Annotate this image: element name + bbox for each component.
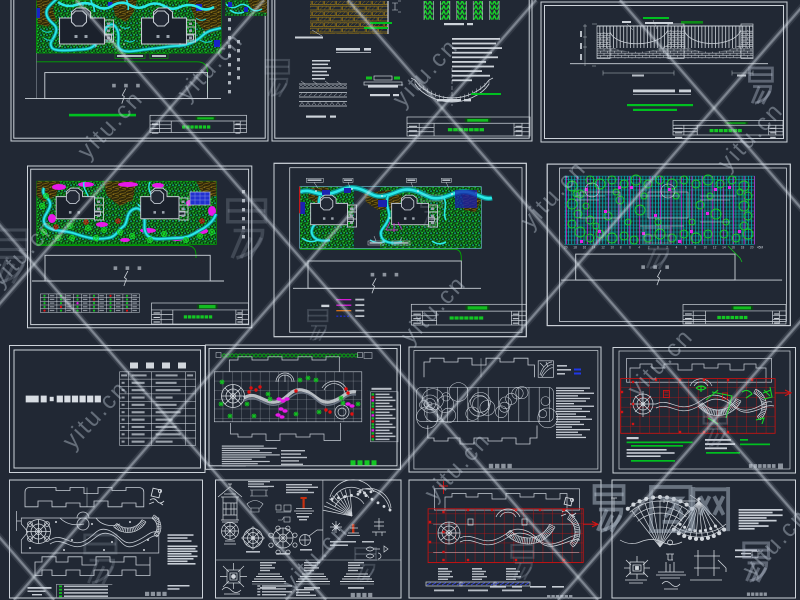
svg-text:16: 16 [583,246,587,250]
svg-text:4: 4 [638,246,640,250]
svg-text:10: 10 [611,246,615,250]
svg-text:18: 18 [573,246,577,250]
svg-text:4: 4 [676,246,678,250]
svg-text:20: 20 [750,246,754,250]
svg-text:14: 14 [722,246,726,250]
svg-text:6: 6 [629,246,631,250]
svg-text:16: 16 [731,246,735,250]
svg-text:45M: 45M [757,246,764,250]
svg-text:18: 18 [741,246,745,250]
svg-text:10: 10 [704,246,708,250]
svg-text:12: 12 [601,246,605,250]
svg-text:12: 12 [713,246,717,250]
svg-text:6: 6 [685,246,687,250]
svg-text:8: 8 [694,246,696,250]
svg-text:8: 8 [620,246,622,250]
